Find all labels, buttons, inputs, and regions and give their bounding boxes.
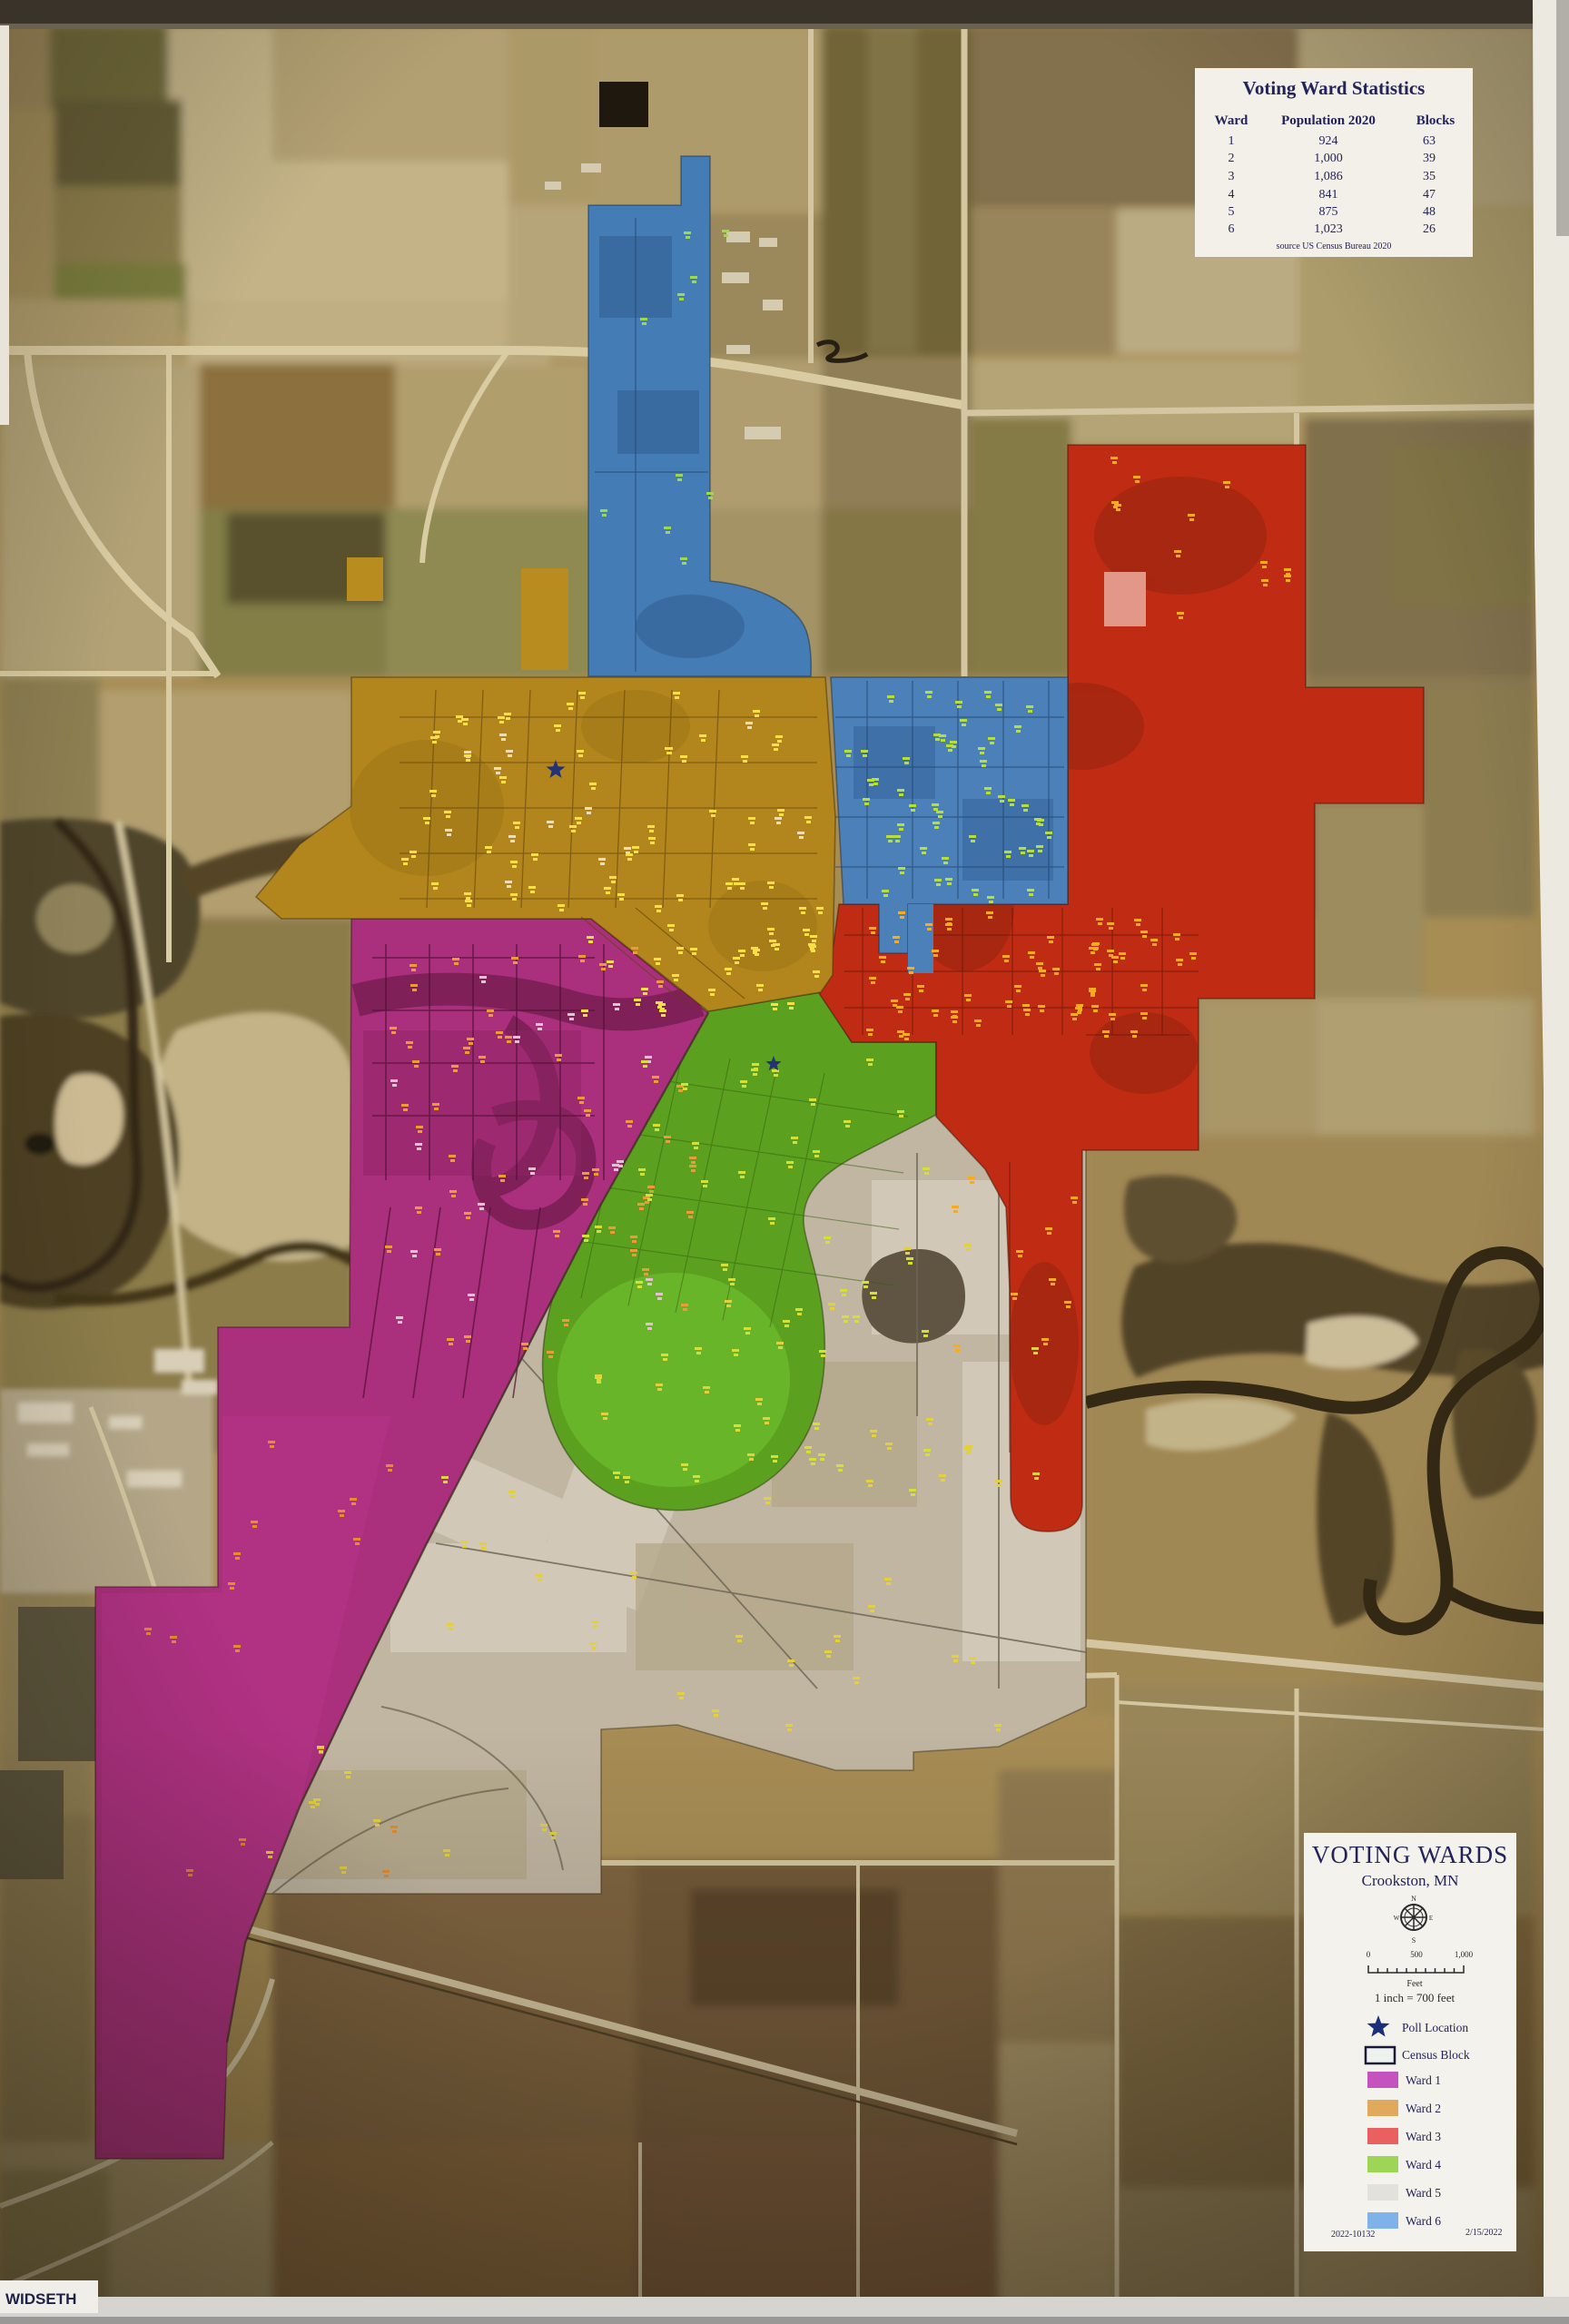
- svg-text:2022-10132: 2022-10132: [1331, 2230, 1375, 2240]
- svg-text:63: 63: [1423, 134, 1436, 148]
- svg-text:1,000: 1,000: [1314, 152, 1343, 165]
- svg-text:Ward 6: Ward 6: [1406, 2214, 1441, 2228]
- svg-text:W: W: [1394, 1915, 1400, 1922]
- svg-text:Ward 2: Ward 2: [1406, 2102, 1441, 2115]
- svg-text:1,023: 1,023: [1314, 222, 1343, 236]
- svg-text:N: N: [1411, 1895, 1416, 1903]
- svg-text:1: 1: [1229, 134, 1235, 148]
- svg-text:Feet: Feet: [1406, 1979, 1422, 1989]
- svg-text:WIDSETH: WIDSETH: [5, 2290, 76, 2308]
- svg-text:47: 47: [1423, 188, 1436, 202]
- svg-text:500: 500: [1410, 1950, 1423, 1959]
- svg-text:35: 35: [1423, 170, 1436, 183]
- svg-text:1,000: 1,000: [1455, 1950, 1474, 1959]
- svg-text:S: S: [1412, 1936, 1416, 1945]
- svg-text:source US Census Bureau 2020: source US Census Bureau 2020: [1277, 241, 1392, 251]
- svg-text:Blocks: Blocks: [1416, 113, 1456, 128]
- svg-text:48: 48: [1423, 205, 1436, 219]
- svg-text:Poll Location: Poll Location: [1402, 2021, 1468, 2034]
- svg-text:4: 4: [1229, 188, 1235, 202]
- svg-text:Ward 3: Ward 3: [1406, 2130, 1441, 2143]
- svg-text:0: 0: [1367, 1950, 1371, 1959]
- svg-text:Crookston, MN: Crookston, MN: [1362, 1872, 1459, 1889]
- svg-text:2/15/2022: 2/15/2022: [1465, 2228, 1503, 2238]
- svg-text:VOTING WARDS: VOTING WARDS: [1312, 1841, 1508, 1868]
- svg-text:Ward: Ward: [1215, 113, 1248, 128]
- svg-text:1 inch = 700 feet: 1 inch = 700 feet: [1375, 1991, 1456, 2004]
- svg-text:Census Block: Census Block: [1402, 2048, 1470, 2062]
- svg-text:39: 39: [1423, 152, 1436, 165]
- svg-text:Voting Ward Statistics: Voting Ward Statistics: [1243, 77, 1426, 99]
- svg-text:E: E: [1429, 1915, 1433, 1922]
- svg-text:6: 6: [1229, 222, 1235, 236]
- svg-text:924: 924: [1319, 134, 1338, 148]
- svg-text:3: 3: [1229, 170, 1235, 183]
- svg-text:1,086: 1,086: [1314, 170, 1343, 183]
- svg-text:Ward 1: Ward 1: [1406, 2073, 1441, 2087]
- svg-text:Ward 4: Ward 4: [1406, 2158, 1441, 2171]
- svg-text:Ward 5: Ward 5: [1406, 2186, 1441, 2200]
- svg-text:5: 5: [1229, 205, 1235, 219]
- svg-text:2: 2: [1229, 152, 1235, 165]
- svg-text:841: 841: [1319, 188, 1338, 202]
- svg-text:Population 2020: Population 2020: [1281, 113, 1376, 128]
- svg-text:26: 26: [1423, 222, 1436, 236]
- svg-text:875: 875: [1319, 205, 1338, 219]
